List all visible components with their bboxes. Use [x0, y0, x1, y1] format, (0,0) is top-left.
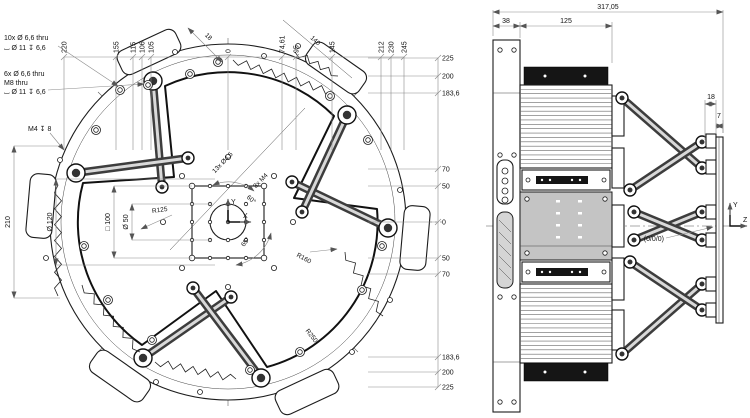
drawing-canvas: 60° 65° R125 R160 R250 13x Ø4,5 8x M4 18… — [0, 0, 750, 418]
ordinate-label: 212 — [379, 41, 386, 53]
strut — [622, 284, 702, 354]
top-finned-block — [520, 85, 612, 168]
bottom-cap-plate — [524, 363, 608, 381]
ordinate-label: 230 — [389, 41, 396, 53]
axis-z-label: Z — [743, 217, 748, 224]
dim-sq100: □ 100 — [105, 213, 112, 231]
mid-block — [520, 192, 612, 260]
ordinate-label: 183,6 — [442, 355, 460, 362]
ordinate-label: 155 — [114, 41, 121, 53]
dim-offset18: 18 — [707, 94, 715, 101]
ordinate-label: 245 — [402, 41, 409, 53]
dim-d120: Ø 120 — [47, 212, 54, 231]
ordinate-label: 0 — [226, 49, 233, 53]
ordinate-label: 115 — [131, 42, 138, 53]
platform-plate-side — [706, 134, 723, 323]
dim-flange: 38 — [502, 18, 510, 25]
callout-10x-line1: 10x Ø 6,6 thru — [4, 35, 48, 42]
origin-label: (0/0/0) — [644, 236, 664, 243]
ordinate-label: 95 — [294, 45, 301, 53]
ordinate-label: 70 — [442, 167, 450, 174]
technical-drawing-page: 60° 65° R125 R160 R250 13x Ø4,5 8x M4 18… — [0, 0, 750, 418]
dim-210: 210 — [5, 216, 12, 228]
top-cap-plate — [524, 67, 608, 85]
ordinate-label: 0 — [442, 220, 446, 227]
axis-x-label: X — [243, 213, 248, 220]
ordinate-label: 70 — [442, 272, 450, 279]
dim-plate7: 7 — [717, 113, 721, 120]
dim-d50: Ø 50 — [123, 214, 130, 229]
axis-y-label: Y — [733, 202, 738, 209]
callout-6x-line1: 6x Ø 6,6 thru — [4, 71, 45, 78]
ordinate-label: 220 — [62, 41, 69, 53]
dim-overall: 317,05 — [597, 4, 619, 11]
ordinate-label: 145 — [330, 41, 337, 53]
connector-bar-1 — [522, 170, 610, 190]
right-view: 317,05 38 125 18 7 (0/0/0) Y Z — [486, 4, 748, 412]
connector-bar-2 — [522, 262, 610, 282]
ordinate-label: 105 — [149, 41, 156, 53]
dim-body: 125 — [560, 18, 572, 25]
ordinate-label: 50 — [442, 256, 450, 263]
ordinate-label: 50 — [442, 184, 450, 191]
callout-6x-line2: M8 thru — [4, 80, 28, 87]
axis-y-label: Y — [231, 199, 236, 206]
callout-6x-line3: ⌴ Ø 11 ↧ 6,6 — [4, 89, 46, 96]
ordinate-label: 200 — [442, 370, 454, 377]
ordinate-label: 225 — [442, 56, 454, 63]
diag18-label: 18 — [203, 32, 213, 42]
strut — [630, 142, 702, 190]
bottom-finned-block — [520, 284, 612, 363]
ordinate-label: 106 — [140, 41, 147, 53]
motor-body — [520, 67, 624, 381]
ordinate-label: 183,6 — [442, 91, 460, 98]
callout-m4: M4 ↧ 8 — [28, 126, 51, 133]
strut-brackets — [612, 96, 624, 350]
strut — [622, 98, 702, 168]
ordinate-label: 74,61 — [280, 35, 287, 53]
ordinate-label: 200 — [442, 74, 454, 81]
struts-side-view — [616, 92, 708, 360]
strut — [630, 262, 702, 310]
base-flange — [493, 40, 520, 412]
ordinate-label: 225 — [442, 385, 454, 392]
callout-10x-line2: ⌴ Ø 11 ↧ 6,6 — [4, 45, 46, 52]
yz-axis-symbol: Y Z — [730, 202, 748, 226]
left-view: 60° 65° R125 R160 R250 13x Ø4,5 8x M4 18… — [4, 20, 460, 417]
